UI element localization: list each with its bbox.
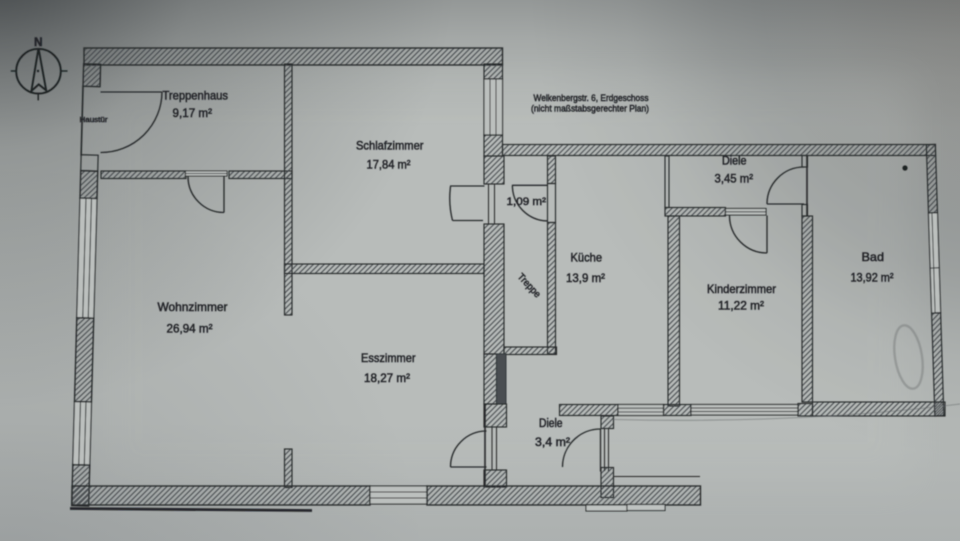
svg-text:13,9 m²: 13,9 m² [566, 271, 605, 285]
svg-text:3,45 m²: 3,45 m² [715, 172, 754, 186]
svg-text:Diele: Diele [539, 418, 563, 430]
svg-text:Bad: Bad [862, 250, 885, 264]
svg-text:Welkenbergstr. 6, Erdgeschoss: Welkenbergstr. 6, Erdgeschoss [534, 93, 649, 104]
svg-text:1,09 m²: 1,09 m² [507, 196, 547, 208]
svg-text:9,17 m²: 9,17 m² [173, 106, 213, 120]
svg-text:13,92 m²: 13,92 m² [851, 270, 894, 284]
svg-text:Esszimmer: Esszimmer [361, 351, 416, 365]
svg-text:26,94 m²: 26,94 m² [167, 322, 213, 336]
svg-text:3,4 m²: 3,4 m² [535, 435, 570, 449]
svg-text:Haustür: Haustür [80, 115, 109, 124]
svg-text:Schlafzimmer: Schlafzimmer [356, 138, 424, 152]
svg-text:Wohnzimmer: Wohnzimmer [158, 300, 228, 314]
svg-text:Treppenhaus: Treppenhaus [163, 89, 229, 103]
svg-text:Küche: Küche [571, 251, 603, 265]
svg-text:18,27 m²: 18,27 m² [364, 371, 410, 385]
svg-text:Kinderzimmer: Kinderzimmer [707, 282, 776, 296]
svg-text:11,22 m²: 11,22 m² [718, 299, 764, 313]
svg-text:(nicht maßstabsgerechter Plan): (nicht maßstabsgerechter Plan) [531, 104, 649, 115]
svg-text:N: N [34, 37, 42, 49]
svg-text:17,84 m²: 17,84 m² [367, 157, 411, 171]
svg-text:Diele: Diele [722, 155, 747, 167]
